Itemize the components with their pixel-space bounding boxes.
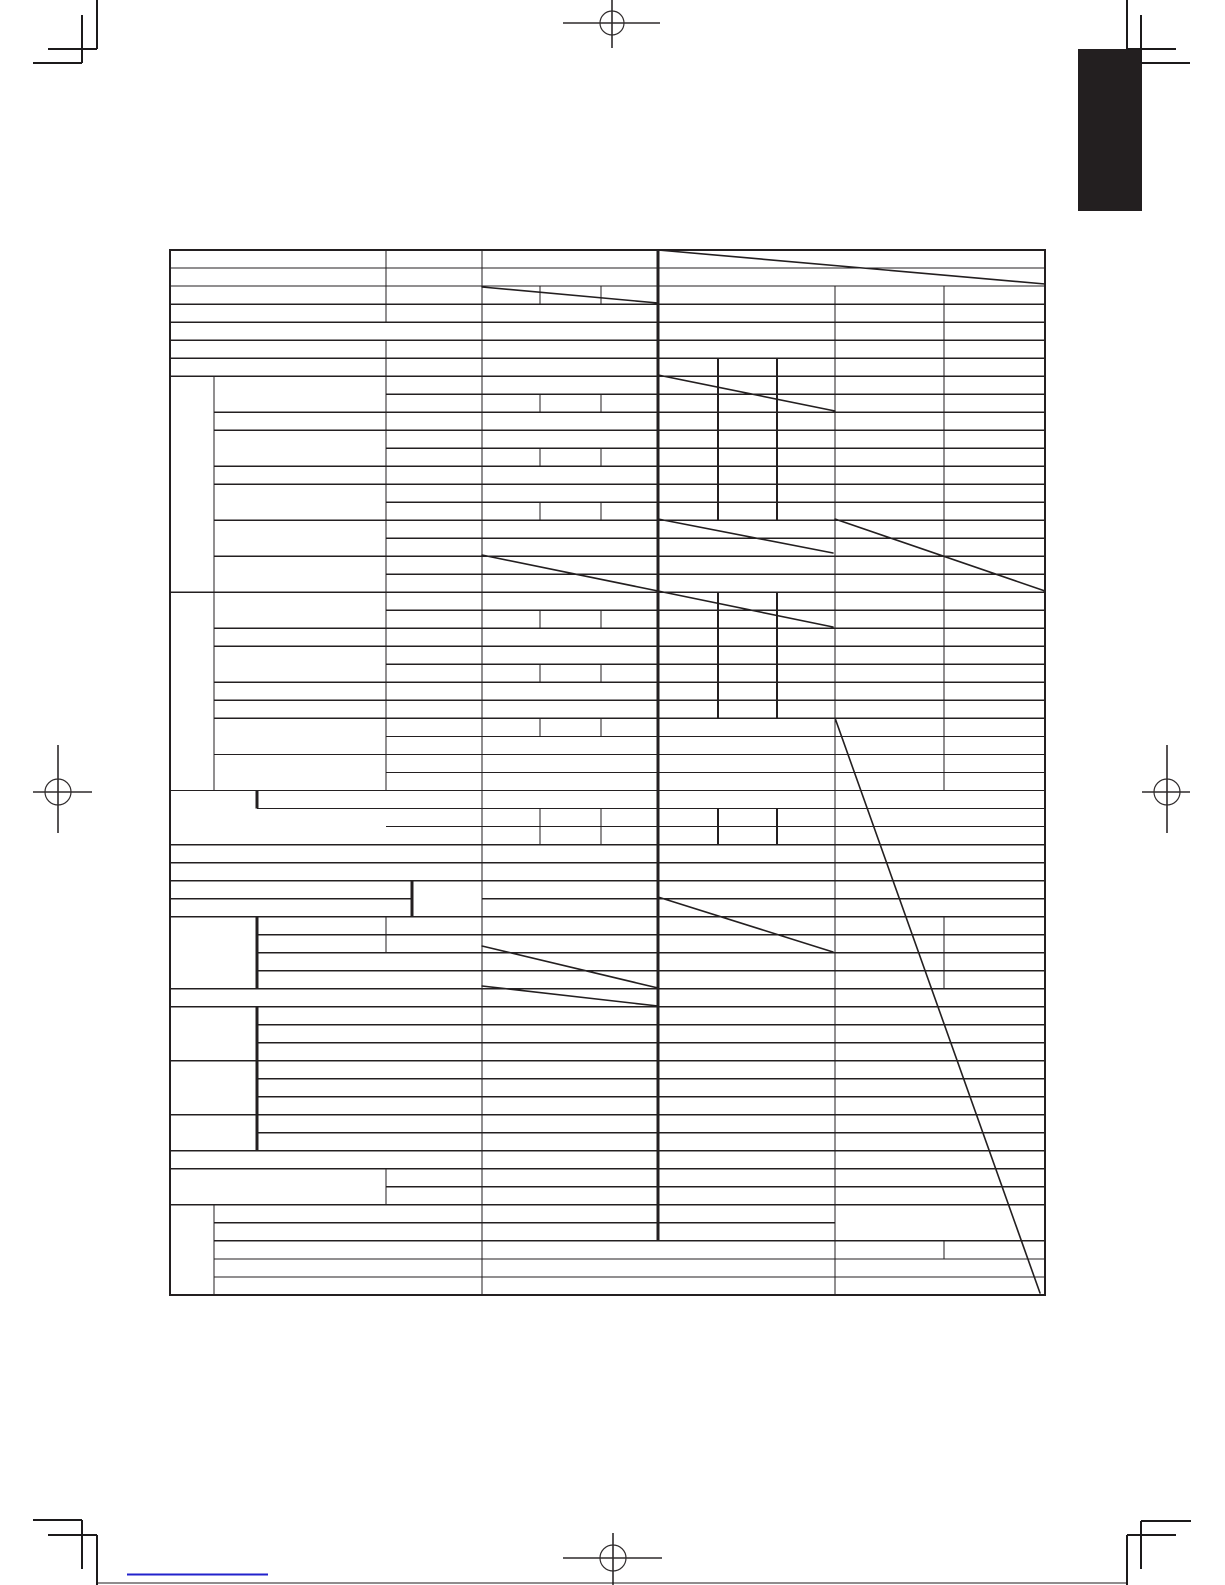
grid-horizontals <box>170 250 1045 1295</box>
registration-marks <box>33 0 1190 1585</box>
na-diagonal-slash <box>658 250 1045 284</box>
na-diagonal-slash <box>482 287 658 303</box>
document-page <box>0 0 1225 1585</box>
na-diagonal-slash <box>835 718 1040 1293</box>
spec-table-figure <box>0 0 1225 1585</box>
na-diagonal-slash <box>835 519 1045 591</box>
na-diagonal-slash <box>658 375 835 411</box>
na-slashes <box>482 250 1045 1293</box>
chapter-tab <box>1078 49 1142 211</box>
na-diagonal-slash <box>482 555 658 591</box>
na-diagonal-slash <box>658 591 833 627</box>
na-diagonal-slash <box>658 897 833 952</box>
na-diagonal-slash <box>658 519 833 553</box>
crop-marks <box>33 0 1191 1585</box>
